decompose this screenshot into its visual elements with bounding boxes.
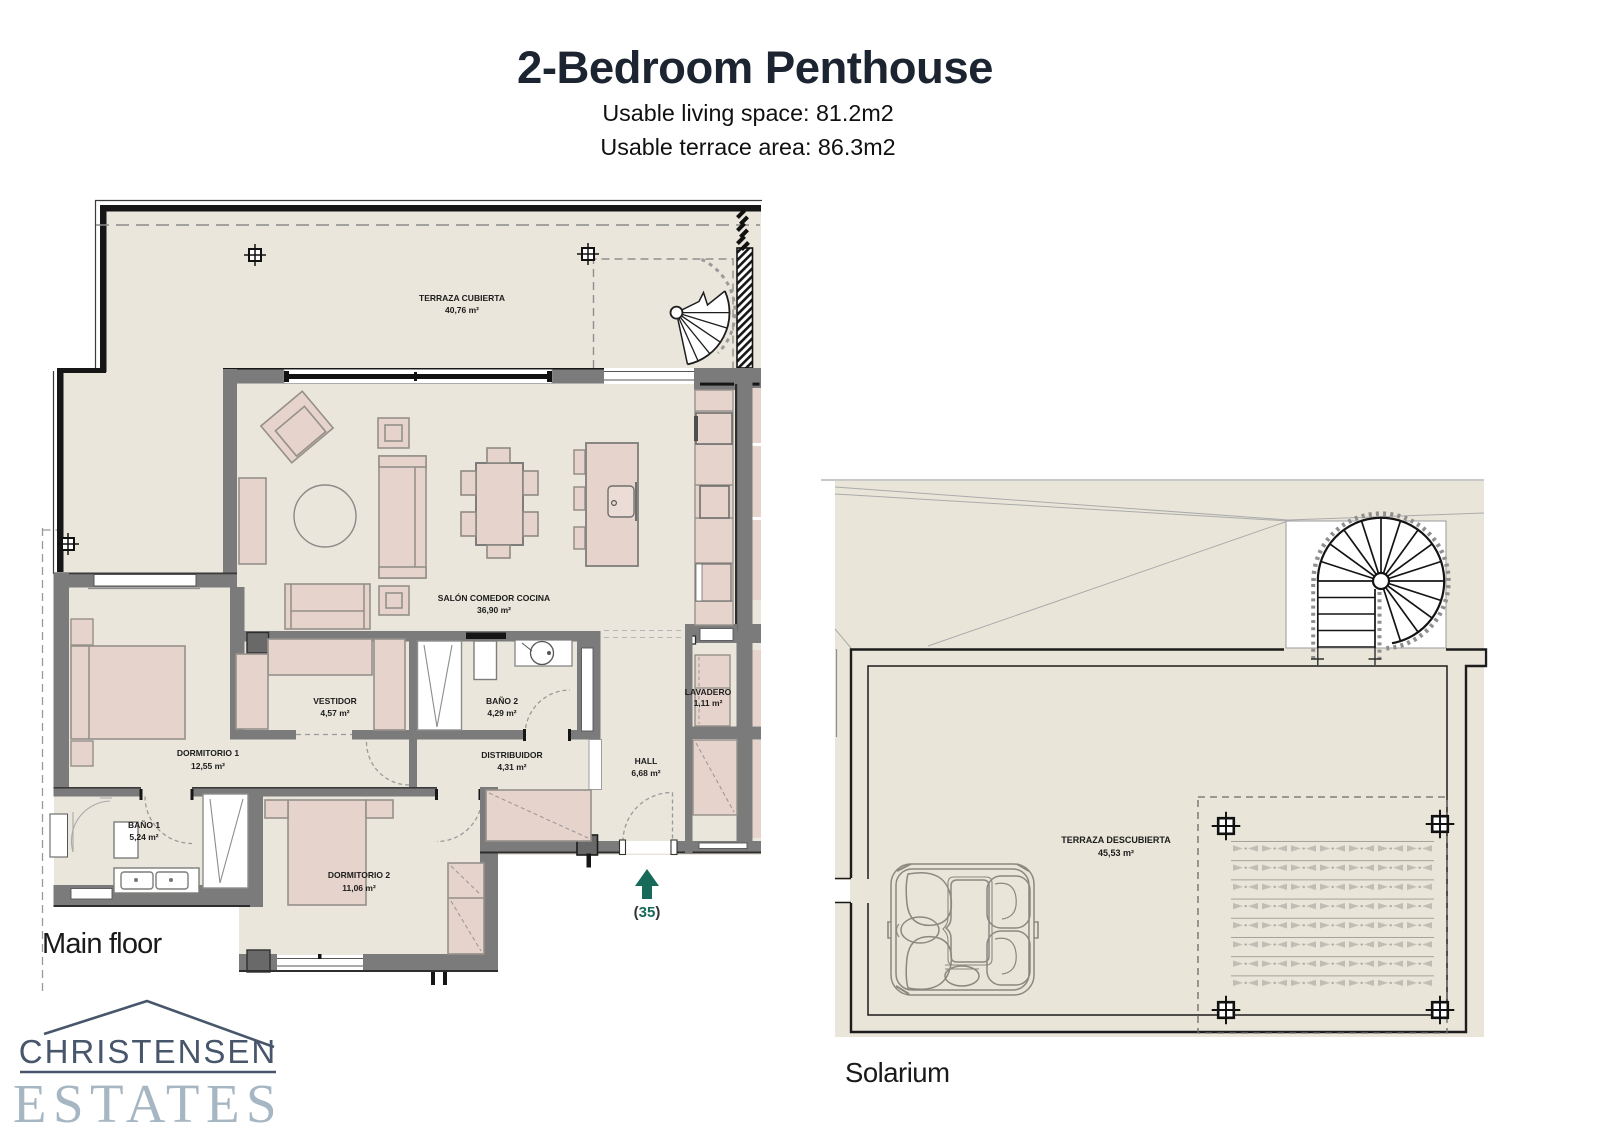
svg-text:Main floor: Main floor: [42, 928, 162, 960]
svg-text:TERRAZA DESCUBIERTA: TERRAZA DESCUBIERTA: [1061, 835, 1171, 845]
svg-text:Usable terrace area: 86.3m2: Usable terrace area: 86.3m2: [600, 134, 895, 160]
svg-text:LAVADERO: LAVADERO: [685, 687, 732, 697]
svg-text:4,31 m²: 4,31 m²: [497, 762, 526, 772]
svg-text:12,55 m²: 12,55 m²: [191, 761, 225, 771]
svg-text:2-Bedroom Penthouse: 2-Bedroom Penthouse: [517, 42, 993, 93]
svg-text:1,11 m²: 1,11 m²: [694, 698, 723, 708]
svg-text:4,29 m²: 4,29 m²: [487, 708, 516, 718]
svg-text:HALL: HALL: [635, 756, 658, 766]
svg-text:40,76 m²: 40,76 m²: [445, 305, 479, 315]
svg-text:SALÓN COMEDOR COCINA: SALÓN COMEDOR COCINA: [438, 592, 550, 603]
svg-text:45,53 m²: 45,53 m²: [1098, 848, 1134, 858]
svg-text:4,57 m²: 4,57 m²: [320, 708, 349, 718]
svg-text:36,90 m²: 36,90 m²: [477, 605, 511, 615]
svg-text:Usable living space: 81.2m2: Usable living space: 81.2m2: [602, 100, 893, 126]
svg-text:ESTATES: ESTATES: [13, 1073, 283, 1131]
svg-text:(35): (35): [634, 904, 661, 921]
svg-text:VESTIDOR: VESTIDOR: [313, 696, 356, 706]
svg-text:DISTRIBUIDOR: DISTRIBUIDOR: [481, 750, 542, 760]
svg-text:6,68 m²: 6,68 m²: [631, 768, 660, 778]
svg-text:Solarium: Solarium: [845, 1057, 950, 1088]
svg-text:BAÑO 2: BAÑO 2: [486, 696, 518, 706]
svg-text:CHRISTENSEN: CHRISTENSEN: [19, 1033, 278, 1070]
svg-text:11,06 m²: 11,06 m²: [342, 883, 376, 893]
svg-text:TERRAZA CUBIERTA: TERRAZA CUBIERTA: [419, 293, 505, 303]
svg-text:DORMITORIO 2: DORMITORIO 2: [328, 870, 390, 880]
svg-text:BAÑO 1: BAÑO 1: [128, 820, 160, 830]
svg-text:5,24 m²: 5,24 m²: [129, 832, 158, 842]
svg-text:DORMITORIO 1: DORMITORIO 1: [177, 748, 239, 758]
